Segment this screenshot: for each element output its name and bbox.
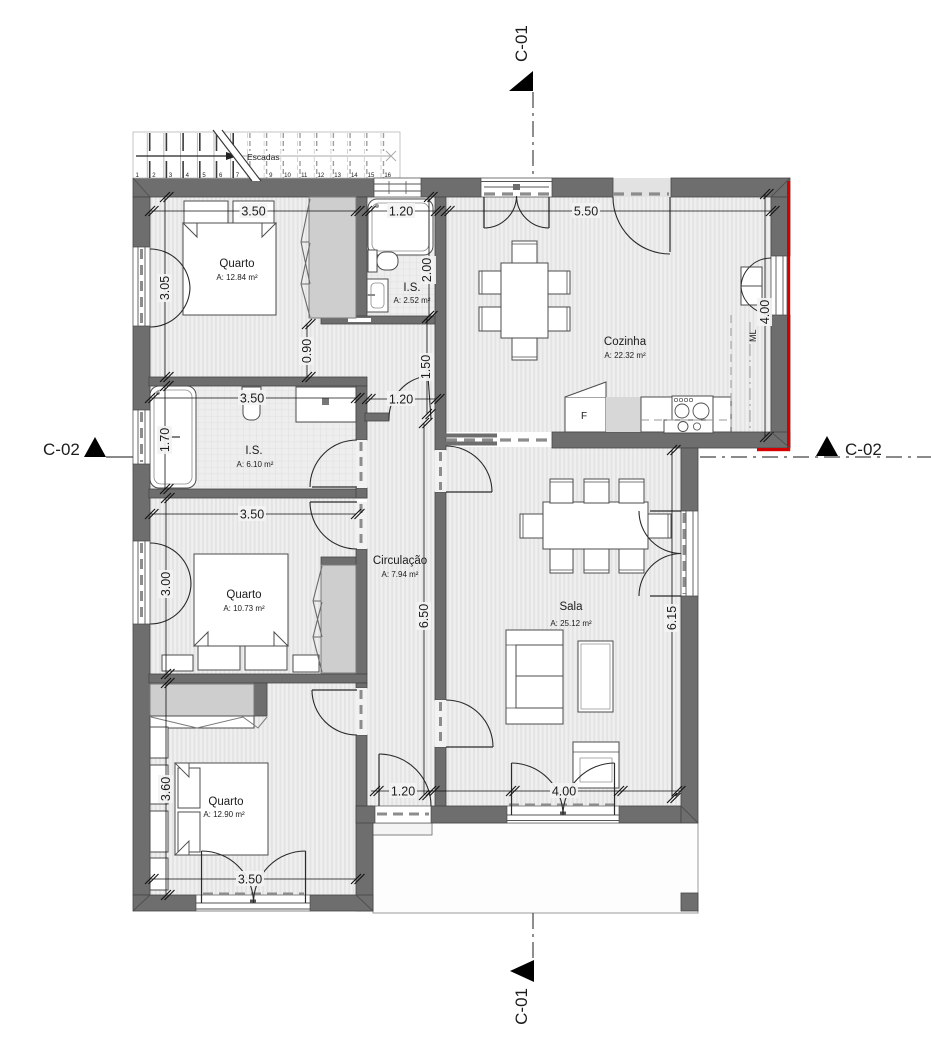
svg-text:2.00: 2.00 [420, 258, 434, 282]
svg-text:C-02: C-02 [845, 440, 882, 459]
svg-text:A: 2.52 m²: A: 2.52 m² [394, 296, 431, 305]
svg-text:3.60: 3.60 [159, 777, 173, 801]
svg-text:1.20: 1.20 [389, 393, 413, 407]
svg-text:3.50: 3.50 [240, 508, 264, 522]
svg-text:3.00: 3.00 [159, 572, 173, 596]
svg-text:11: 11 [301, 173, 308, 179]
svg-text:A: 6.10 m²: A: 6.10 m² [237, 460, 274, 469]
svg-text:Escadas: Escadas [247, 152, 280, 162]
svg-text:6.15: 6.15 [665, 606, 679, 630]
svg-text:Sala: Sala [559, 601, 583, 613]
svg-text:3.50: 3.50 [241, 205, 265, 219]
svg-text:C-01: C-01 [512, 988, 531, 1025]
svg-text:Quarto: Quarto [208, 796, 243, 808]
svg-text:1.70: 1.70 [158, 428, 172, 452]
svg-text:Quarto: Quarto [219, 258, 254, 270]
svg-text:ML: ML [748, 329, 758, 342]
svg-text:Cozinha: Cozinha [604, 336, 647, 348]
svg-text:14: 14 [351, 173, 358, 179]
svg-text:6.50: 6.50 [417, 604, 431, 628]
svg-text:A: 7.94 m²: A: 7.94 m² [382, 570, 419, 579]
svg-text:3.50: 3.50 [240, 392, 264, 406]
svg-text:13: 13 [334, 173, 341, 179]
svg-text:0.90: 0.90 [300, 339, 314, 363]
svg-text:4.00: 4.00 [552, 785, 576, 799]
svg-text:A: 12.90 m²: A: 12.90 m² [203, 810, 245, 819]
svg-text:I.S.: I.S. [245, 445, 262, 457]
svg-text:C-01: C-01 [512, 25, 531, 62]
svg-text:1.20: 1.20 [391, 785, 415, 799]
svg-text:1.20: 1.20 [389, 205, 413, 219]
svg-text:I.S.: I.S. [403, 282, 420, 294]
svg-text:3.05: 3.05 [158, 276, 172, 300]
svg-text:F: F [581, 411, 587, 422]
svg-text:C-02: C-02 [43, 440, 80, 459]
svg-text:1.50: 1.50 [419, 355, 433, 379]
svg-text:A: 25.12 m²: A: 25.12 m² [550, 619, 592, 628]
svg-text:A: 22.32 m²: A: 22.32 m² [604, 351, 646, 360]
svg-text:A: 12.84 m²: A: 12.84 m² [216, 273, 258, 282]
svg-text:12: 12 [318, 173, 325, 179]
svg-text:3.50: 3.50 [238, 873, 262, 887]
svg-text:A: 10.73 m²: A: 10.73 m² [223, 604, 265, 613]
svg-text:5.50: 5.50 [574, 205, 598, 219]
svg-text:10: 10 [284, 173, 291, 179]
svg-text:4.00: 4.00 [758, 300, 772, 324]
svg-text:Circulação: Circulação [373, 555, 427, 567]
svg-text:Quarto: Quarto [226, 589, 261, 601]
